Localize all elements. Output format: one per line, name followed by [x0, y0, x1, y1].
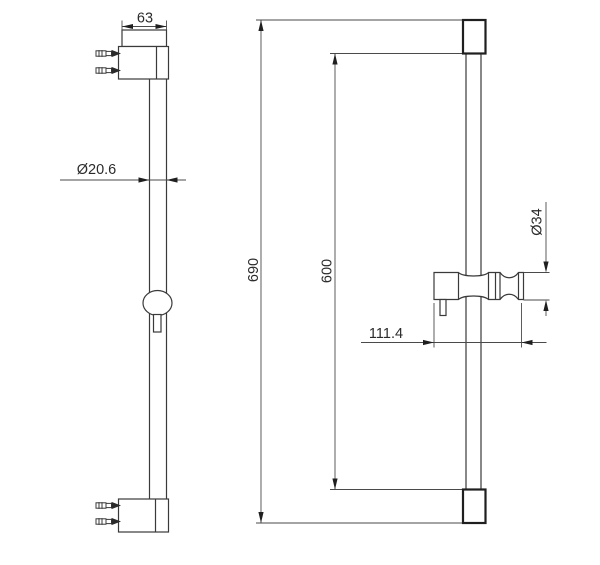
dim-rail-length: 600 [320, 54, 464, 490]
technical-drawing-page: Ø20.6 63 [0, 0, 600, 565]
mounting-screw [96, 502, 121, 509]
dim-bracket-width: 63 [122, 11, 167, 31]
holder-diameter-label: Ø34 [530, 208, 546, 235]
mounting-screw [96, 50, 121, 57]
slide-bar-tube-front [466, 54, 481, 490]
bar-diameter-label: Ø20.6 [77, 162, 117, 178]
holder-lever [440, 300, 446, 316]
dim-bar-diameter: Ø20.6 [60, 162, 186, 183]
bottom-wall-bracket [96, 499, 169, 532]
dim-holder-length: 111.4 [361, 303, 547, 348]
side-view: Ø20.6 63 [60, 11, 186, 533]
drawing-canvas: Ø20.6 63 [0, 0, 600, 565]
front-view: 690 600 [246, 20, 550, 523]
rail-length-label: 600 [320, 259, 336, 283]
handset-holder [434, 273, 524, 316]
mounting-screw [96, 518, 121, 525]
overall-length-label: 690 [246, 258, 262, 282]
slide-bar-tube-side [150, 79, 167, 499]
slider-knob [143, 291, 172, 316]
bracket-width-label: 63 [137, 11, 153, 27]
mounting-screw [96, 67, 121, 74]
top-end-cap [463, 20, 486, 54]
slider-lever [154, 315, 162, 333]
top-wall-bracket [96, 30, 169, 79]
dim-overall-length: 690 [246, 20, 486, 523]
holder-length-label: 111.4 [369, 326, 403, 342]
dim-holder-diameter: Ø34 [524, 202, 550, 316]
bottom-end-cap [463, 490, 486, 524]
